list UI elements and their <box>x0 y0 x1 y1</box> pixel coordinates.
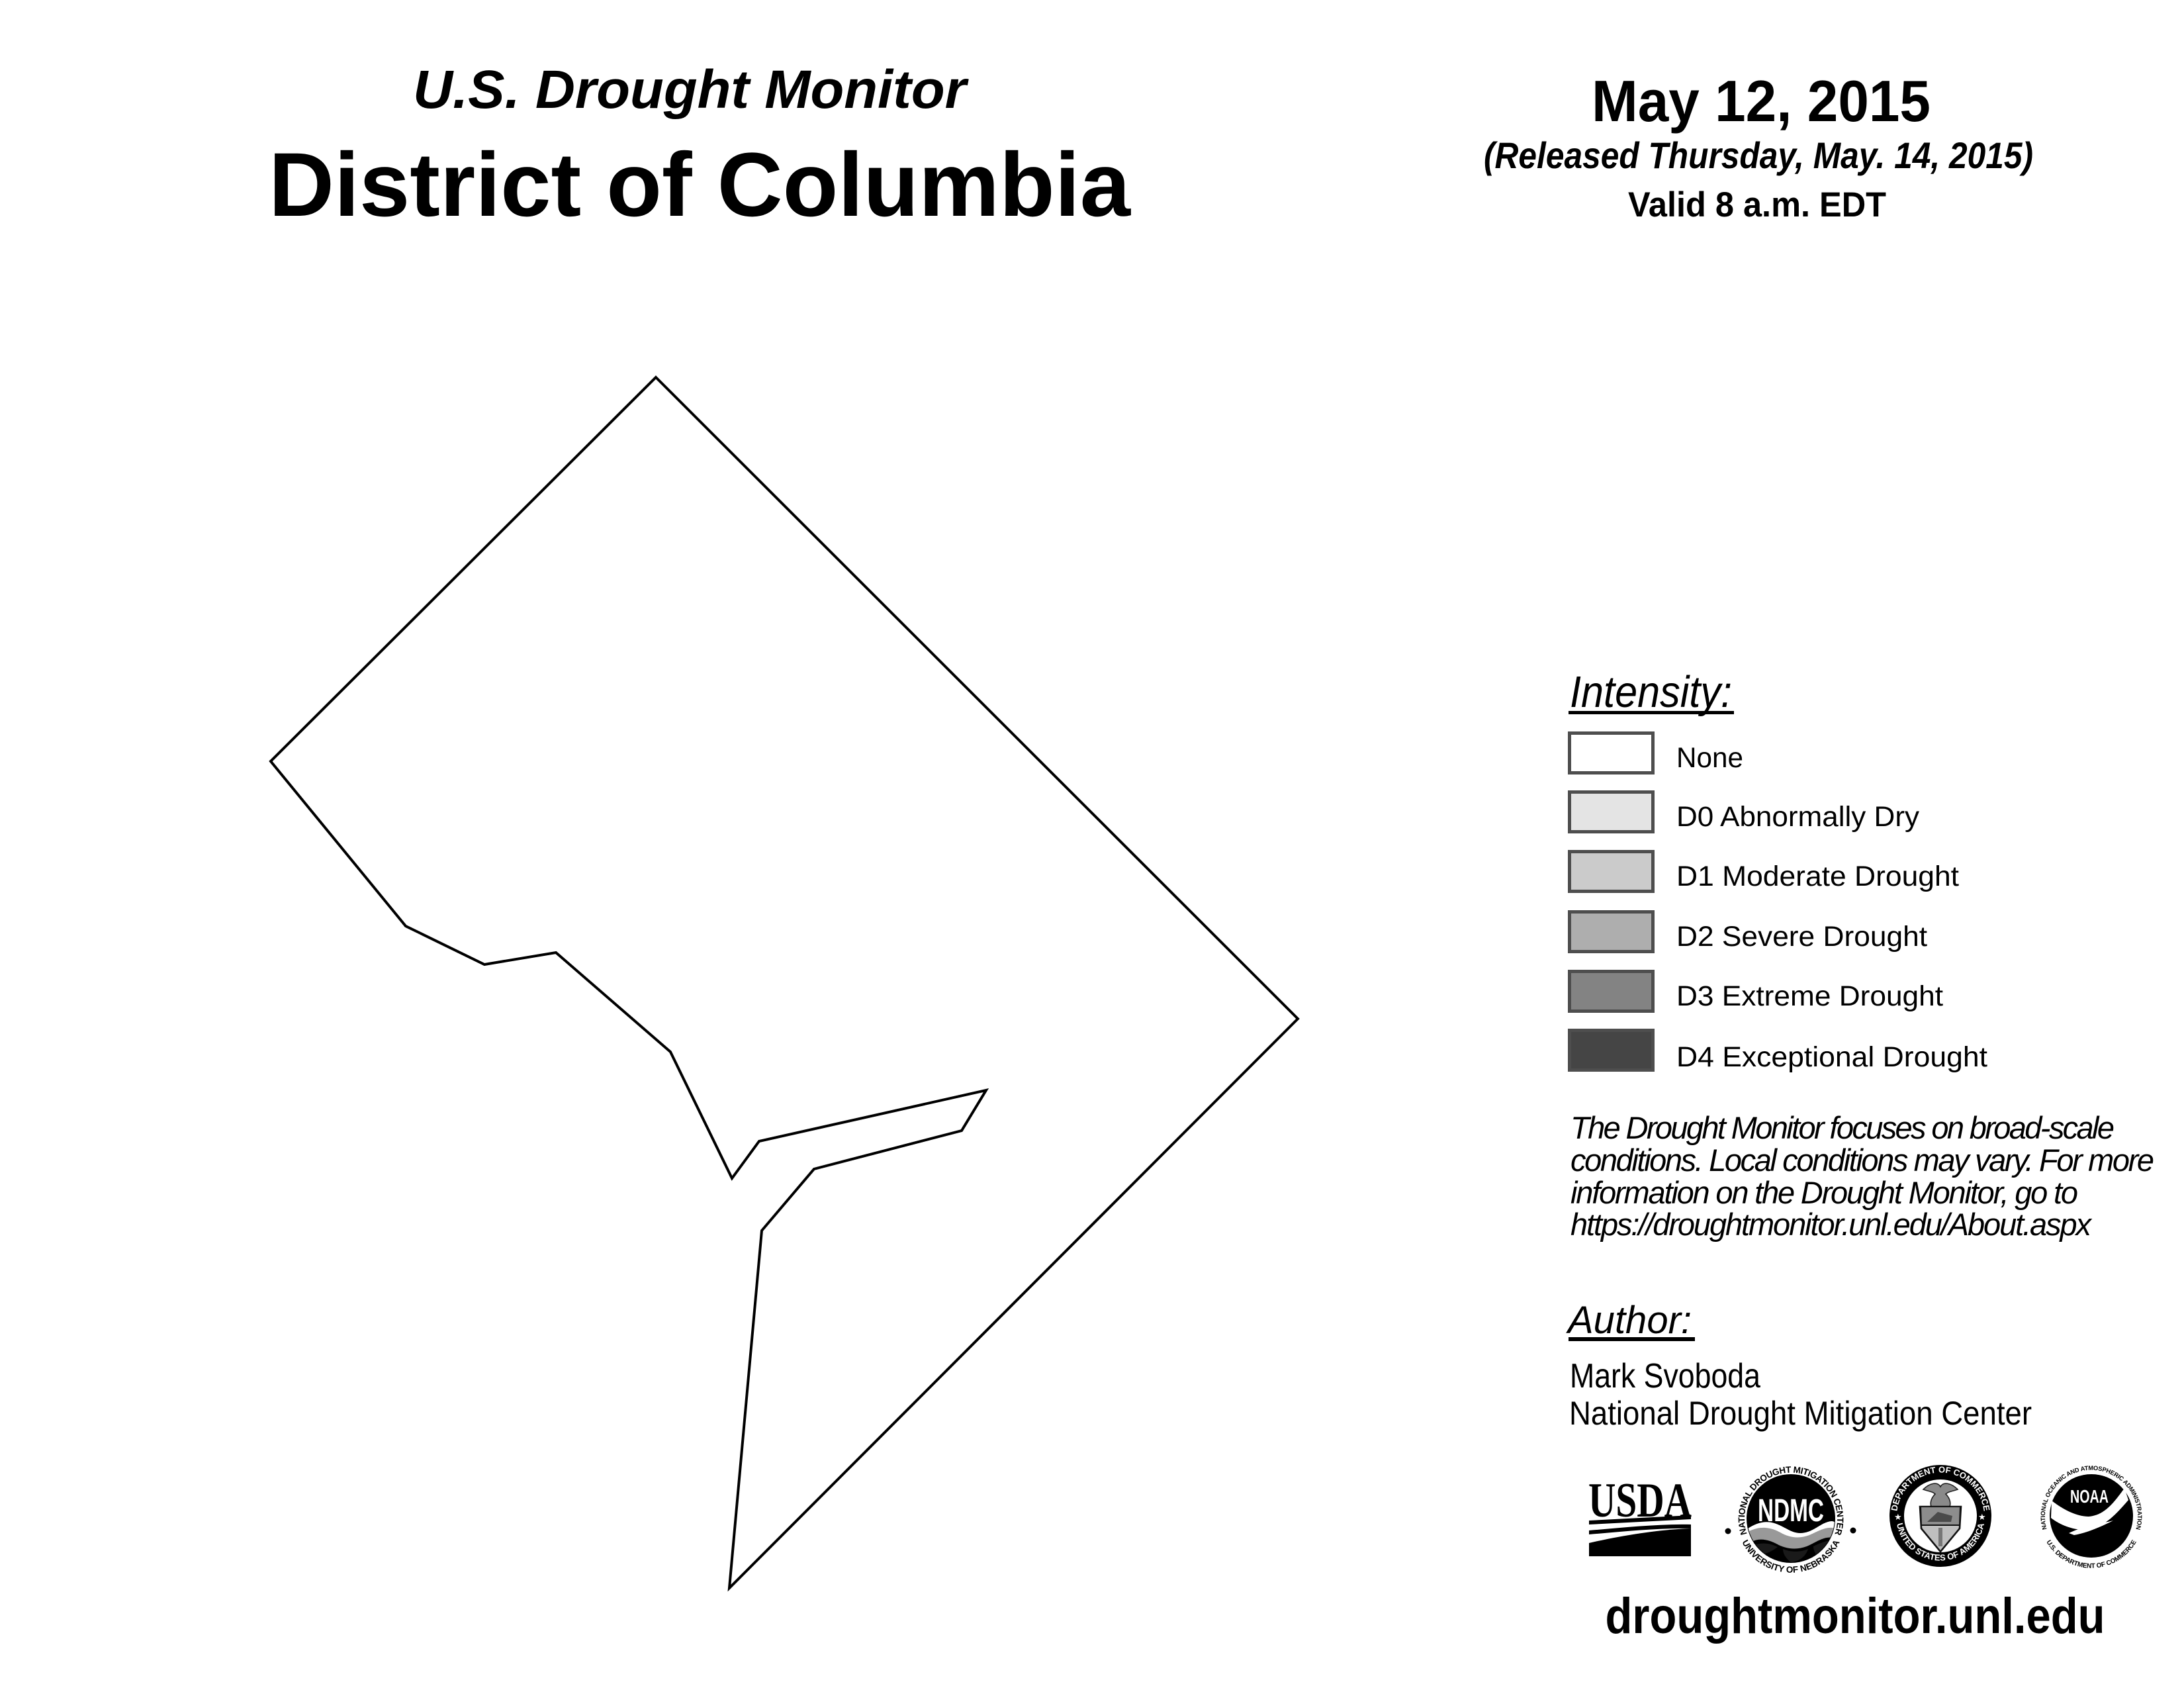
svg-text:D3 Extreme Drought: D3 Extreme Drought <box>1676 980 1943 1012</box>
svg-text:NDMC: NDMC <box>1758 1493 1824 1528</box>
svg-text:https://droughtmonitor.unl.edu: https://droughtmonitor.unl.edu/About.asp… <box>1570 1207 2093 1242</box>
svg-text:information on the Drought Mon: information on the Drought Monitor, go t… <box>1570 1175 2078 1210</box>
svg-text:Mark Svoboda: Mark Svoboda <box>1570 1357 1760 1395</box>
svg-text:D1 Moderate Drought: D1 Moderate Drought <box>1676 861 1959 892</box>
svg-text:D2 Severe Drought: D2 Severe Drought <box>1676 921 1927 953</box>
svg-text:District of Columbia: District of Columbia <box>269 134 1132 236</box>
svg-text:The Drought Monitor focuses on: The Drought Monitor focuses on broad-sca… <box>1570 1110 2115 1145</box>
svg-text:Author:: Author: <box>1566 1299 1692 1342</box>
svg-text:NOAA: NOAA <box>2070 1486 2109 1507</box>
svg-text:D0 Abnormally Dry: D0 Abnormally Dry <box>1676 801 1920 833</box>
svg-text:None: None <box>1676 742 1743 774</box>
svg-text:★: ★ <box>1894 1512 1902 1522</box>
svg-text:Intensity:: Intensity: <box>1570 667 1732 717</box>
svg-text:droughtmonitor.unl.edu: droughtmonitor.unl.edu <box>1606 1588 2105 1644</box>
svg-text:★: ★ <box>1978 1512 1986 1522</box>
svg-text:conditions. Local conditions m: conditions. Local conditions may vary. F… <box>1570 1143 2154 1178</box>
svg-text:(Released Thursday, May. 14, 2: (Released Thursday, May. 14, 2015) <box>1484 134 2033 176</box>
svg-text:May 12, 2015: May 12, 2015 <box>1592 68 1931 134</box>
svg-text:National Drought Mitigation Ce: National Drought Mitigation Center <box>1569 1395 2032 1432</box>
svg-text:D4 Exceptional Drought: D4 Exceptional Drought <box>1676 1041 1987 1073</box>
svg-text:Valid 8 a.m. EDT: Valid 8 a.m. EDT <box>1628 185 1886 224</box>
svg-text:U.S. Drought Monitor: U.S. Drought Monitor <box>413 60 969 120</box>
